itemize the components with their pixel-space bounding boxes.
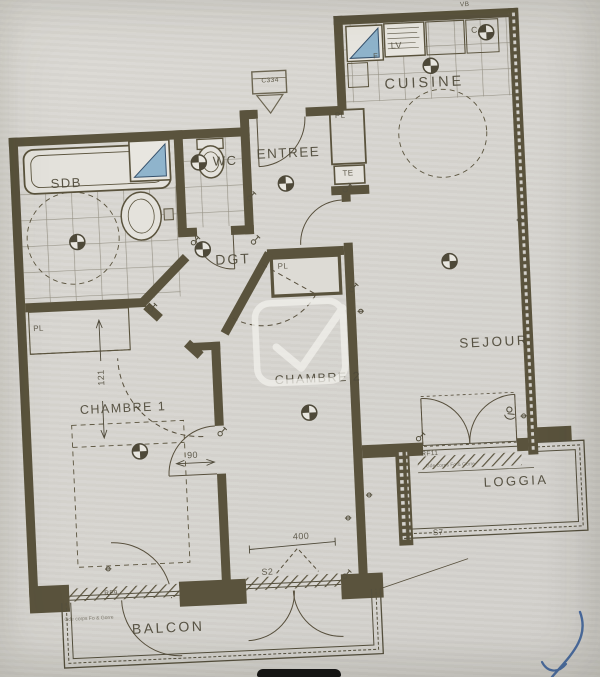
bottom-edge-object <box>257 669 341 677</box>
label-pl-chambre2: PL <box>277 262 288 270</box>
room-label-sejour: SEJOUR <box>459 334 529 351</box>
label-te: TE <box>342 169 353 177</box>
balcony-door-arc-4 <box>293 588 343 638</box>
room-label-sdb: SDB <box>50 176 82 190</box>
right-wall-hatch <box>509 10 535 453</box>
label-c: C <box>471 26 478 35</box>
code-s7: S7 <box>433 529 444 537</box>
sejour-door-arc <box>299 200 344 245</box>
kitchen-table-dashed <box>397 87 489 179</box>
code-rf11: RF11 <box>421 451 438 458</box>
label-vb: VB <box>460 2 470 9</box>
balcony-door-arc-3 <box>246 591 296 641</box>
photo-background: SDB WC ENTREE CUISINE DGT CHAMBRE 1 CHAM… <box>0 0 600 677</box>
room-label-balcon: BALCON <box>132 619 205 636</box>
code-s2: S2 <box>261 567 273 577</box>
room-label-cuisine: CUISINE <box>384 74 464 92</box>
appliance-spec-box <box>384 22 425 57</box>
room-label-entree: ENTREE <box>256 145 320 161</box>
room-label-dgt: DGT <box>215 251 251 267</box>
label-pl-chambre1: PL <box>33 325 44 333</box>
floorplan-sheet: SDB WC ENTREE CUISINE DGT CHAMBRE 1 CHAM… <box>0 0 600 677</box>
room-label-loggia: LOGGIA <box>483 473 548 489</box>
dimension-121: 121 <box>96 365 106 389</box>
chambre1-door-arc <box>118 355 204 441</box>
dimension-400: 400 <box>293 532 310 542</box>
label-pl-entree: PL <box>335 112 346 120</box>
label-f: F <box>373 52 378 60</box>
stamp-code: C334 <box>254 73 287 93</box>
signature-stroke <box>520 598 600 677</box>
room-label-wc: WC <box>213 154 238 168</box>
dimension-90: 90 <box>187 451 198 460</box>
loggia-door-arc-left <box>421 396 470 445</box>
label-lv: LV <box>391 41 403 50</box>
code-rf9: RF9 <box>104 591 118 598</box>
balcony-door-tent <box>275 547 318 573</box>
person-symbol <box>504 407 515 420</box>
